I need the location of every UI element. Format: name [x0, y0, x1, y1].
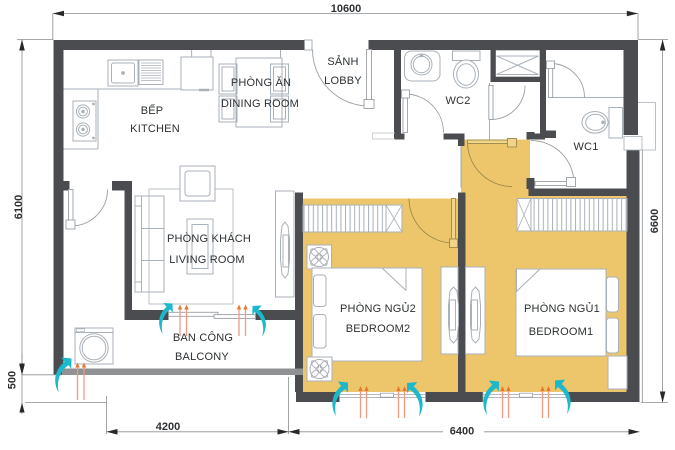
svg-text:SẢNH: SẢNH: [327, 55, 358, 68]
svg-text:6600: 6600: [649, 209, 661, 233]
svg-text:BAN CÔNG: BAN CÔNG: [173, 331, 233, 344]
svg-text:PHÒNG ĂN: PHÒNG ĂN: [231, 76, 291, 89]
svg-text:PHÒNG NGỦ1: PHÒNG NGỦ1: [524, 302, 600, 315]
svg-text:KITCHEN: KITCHEN: [130, 123, 180, 135]
svg-text:500: 500: [7, 371, 19, 389]
svg-text:PHÒNG KHÁCH: PHÒNG KHÁCH: [167, 232, 251, 245]
svg-text:BEDROOM2: BEDROOM2: [346, 323, 411, 335]
svg-text:LIVING ROOM: LIVING ROOM: [169, 254, 245, 266]
svg-text:LOBBY: LOBBY: [324, 75, 362, 87]
svg-text:PHÒNG NGỦ2: PHÒNG NGỦ2: [340, 302, 416, 315]
svg-text:WC1: WC1: [573, 141, 598, 153]
svg-text:DINING ROOM: DINING ROOM: [221, 98, 299, 110]
svg-text:WC2: WC2: [445, 95, 470, 107]
svg-text:BEDROOM1: BEDROOM1: [529, 326, 594, 338]
svg-text:4200: 4200: [156, 421, 180, 433]
svg-text:BALCONY: BALCONY: [175, 351, 229, 363]
svg-text:6400: 6400: [450, 426, 474, 438]
svg-text:10600: 10600: [331, 3, 362, 15]
svg-text:BẾP: BẾP: [141, 104, 164, 117]
svg-text:6100: 6100: [13, 195, 25, 219]
